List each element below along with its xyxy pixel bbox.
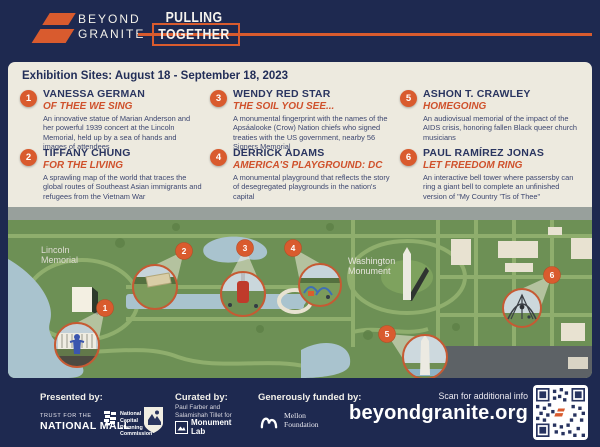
washington-monument-label: Washington [348, 256, 395, 266]
site-number-badge: 2 [20, 149, 37, 166]
mellon-line2: Foundation [284, 421, 319, 430]
monument-lab-line2: Lab [191, 428, 231, 437]
content-panel: Exhibition Sites: August 18 - September … [8, 62, 592, 378]
svg-text:5: 5 [385, 329, 390, 339]
curator-names-line1: Paul Farber and [175, 404, 232, 412]
pulling-together-word1: PULLING [155, 9, 234, 26]
site-entry-2: 2 TIFFANY CHUNG FOR THE LIVING A sprawli… [20, 147, 202, 201]
mellon-m-icon [258, 413, 280, 429]
site-number-badge: 6 [400, 149, 417, 166]
header: BEYOND GRANITE PULLING TOGETHER [0, 0, 600, 62]
lincoln-memorial-building [72, 287, 98, 315]
lincoln-memorial-label-line2: Memorial [41, 255, 78, 265]
lincoln-memorial-label: Lincoln [41, 245, 70, 255]
beyond-granite-logo-mark-bottom [32, 29, 75, 43]
artwork-title: OF THEE WE SING [43, 101, 202, 112]
scan-info-label: Scan for additional info [439, 391, 529, 401]
site-list: 1 VANESSA GERMAN OF THEE WE SING An inno… [20, 88, 582, 201]
site-number-badge: 5 [400, 90, 417, 107]
qr-code [533, 385, 588, 440]
site-entry-5: 5 ASHON T. CRAWLEY HOMEGOING An audiovis… [400, 88, 582, 145]
artwork-title: FOR THE LIVING [43, 160, 202, 171]
monument-lab-logo: Monument Lab [175, 419, 231, 437]
site-marker-4: 4 [285, 240, 302, 257]
artwork-description: An interactive bell tower where passersb… [423, 173, 582, 201]
poster: BEYOND GRANITE PULLING TOGETHER Exhibiti… [0, 0, 600, 447]
artwork-title: AMERICA'S PLAYGROUND: DC [233, 160, 392, 171]
svg-text:4: 4 [291, 243, 296, 253]
site-entry-3: 3 WENDY RED STAR THE SOIL YOU SEE... A m… [210, 88, 392, 145]
qr-center-logo [554, 407, 566, 417]
site-marker-5: 5 [379, 326, 396, 343]
site-marker-2: 2 [176, 243, 193, 260]
monument-lab-icon [175, 421, 188, 434]
site-marker-3: 3 [237, 240, 254, 257]
funded-by-label: Generously funded by: [258, 392, 361, 403]
svg-text:1: 1 [103, 303, 108, 313]
site-entry-4: 4 DERRICK ADAMS AMERICA'S PLAYGROUND: DC… [210, 147, 392, 201]
brand-name: BEYOND GRANITE [78, 12, 145, 42]
artwork-title: LET FREEDOM RING [423, 160, 582, 171]
brand-line1: BEYOND [78, 12, 145, 27]
qr-pattern [536, 388, 585, 437]
curated-by-label: Curated by: [175, 392, 228, 403]
svg-text:2: 2 [182, 246, 187, 256]
artist-name: WENDY RED STAR [233, 88, 392, 100]
brand-line2: GRANITE [78, 27, 145, 42]
artwork-title: HOMEGOING [423, 101, 582, 112]
presented-by-label: Presented by: [40, 392, 103, 403]
site-marker-1: 1 [97, 300, 114, 317]
pulling-together-word2: TOGETHER [155, 26, 234, 43]
trust-logo-line1: TRUST FOR THE [40, 413, 92, 419]
site-number-badge: 3 [210, 90, 227, 107]
beyond-granite-logo-mark-top [42, 13, 75, 25]
artist-name: VANESSA GERMAN [43, 88, 202, 100]
svg-text:6: 6 [550, 270, 555, 280]
artwork-description: A sprawling map of the world that traces… [43, 173, 202, 201]
ncpc-flag-icon [104, 411, 117, 426]
national-park-service-arrowhead-icon [142, 406, 165, 434]
artwork-title: THE SOIL YOU SEE... [233, 101, 392, 112]
site-entry-1: 1 VANESSA GERMAN OF THEE WE SING An inno… [20, 88, 202, 145]
site-entry-6: 6 PAUL RAMÍREZ JONAS LET FREEDOM RING An… [400, 147, 582, 201]
artwork-description: An audiovisual memorial of the impact of… [423, 114, 582, 142]
artist-name: ASHON T. CRAWLEY [423, 88, 582, 100]
artist-name: PAUL RAMÍREZ JONAS [423, 147, 582, 159]
artist-name: TIFFANY CHUNG [43, 147, 202, 159]
map-illustration: Lincoln Memorial Washington Monument [8, 207, 592, 378]
artwork-description: A monumental playground that reflects th… [233, 173, 392, 201]
website-url: beyondgranite.org [349, 402, 528, 425]
exhibition-dates-banner: Exhibition Sites: August 18 - September … [22, 70, 288, 82]
site-number-badge: 4 [210, 149, 227, 166]
washington-monument-label-line2: Monument [348, 266, 391, 276]
artist-name: DERRICK ADAMS [233, 147, 392, 159]
site-marker-6: 6 [544, 267, 561, 284]
national-mall-map: Lincoln Memorial Washington Monument [8, 207, 592, 378]
site-number-badge: 1 [20, 90, 37, 107]
mellon-foundation-logo: Mellon Foundation [258, 412, 319, 429]
svg-text:3: 3 [243, 243, 248, 253]
